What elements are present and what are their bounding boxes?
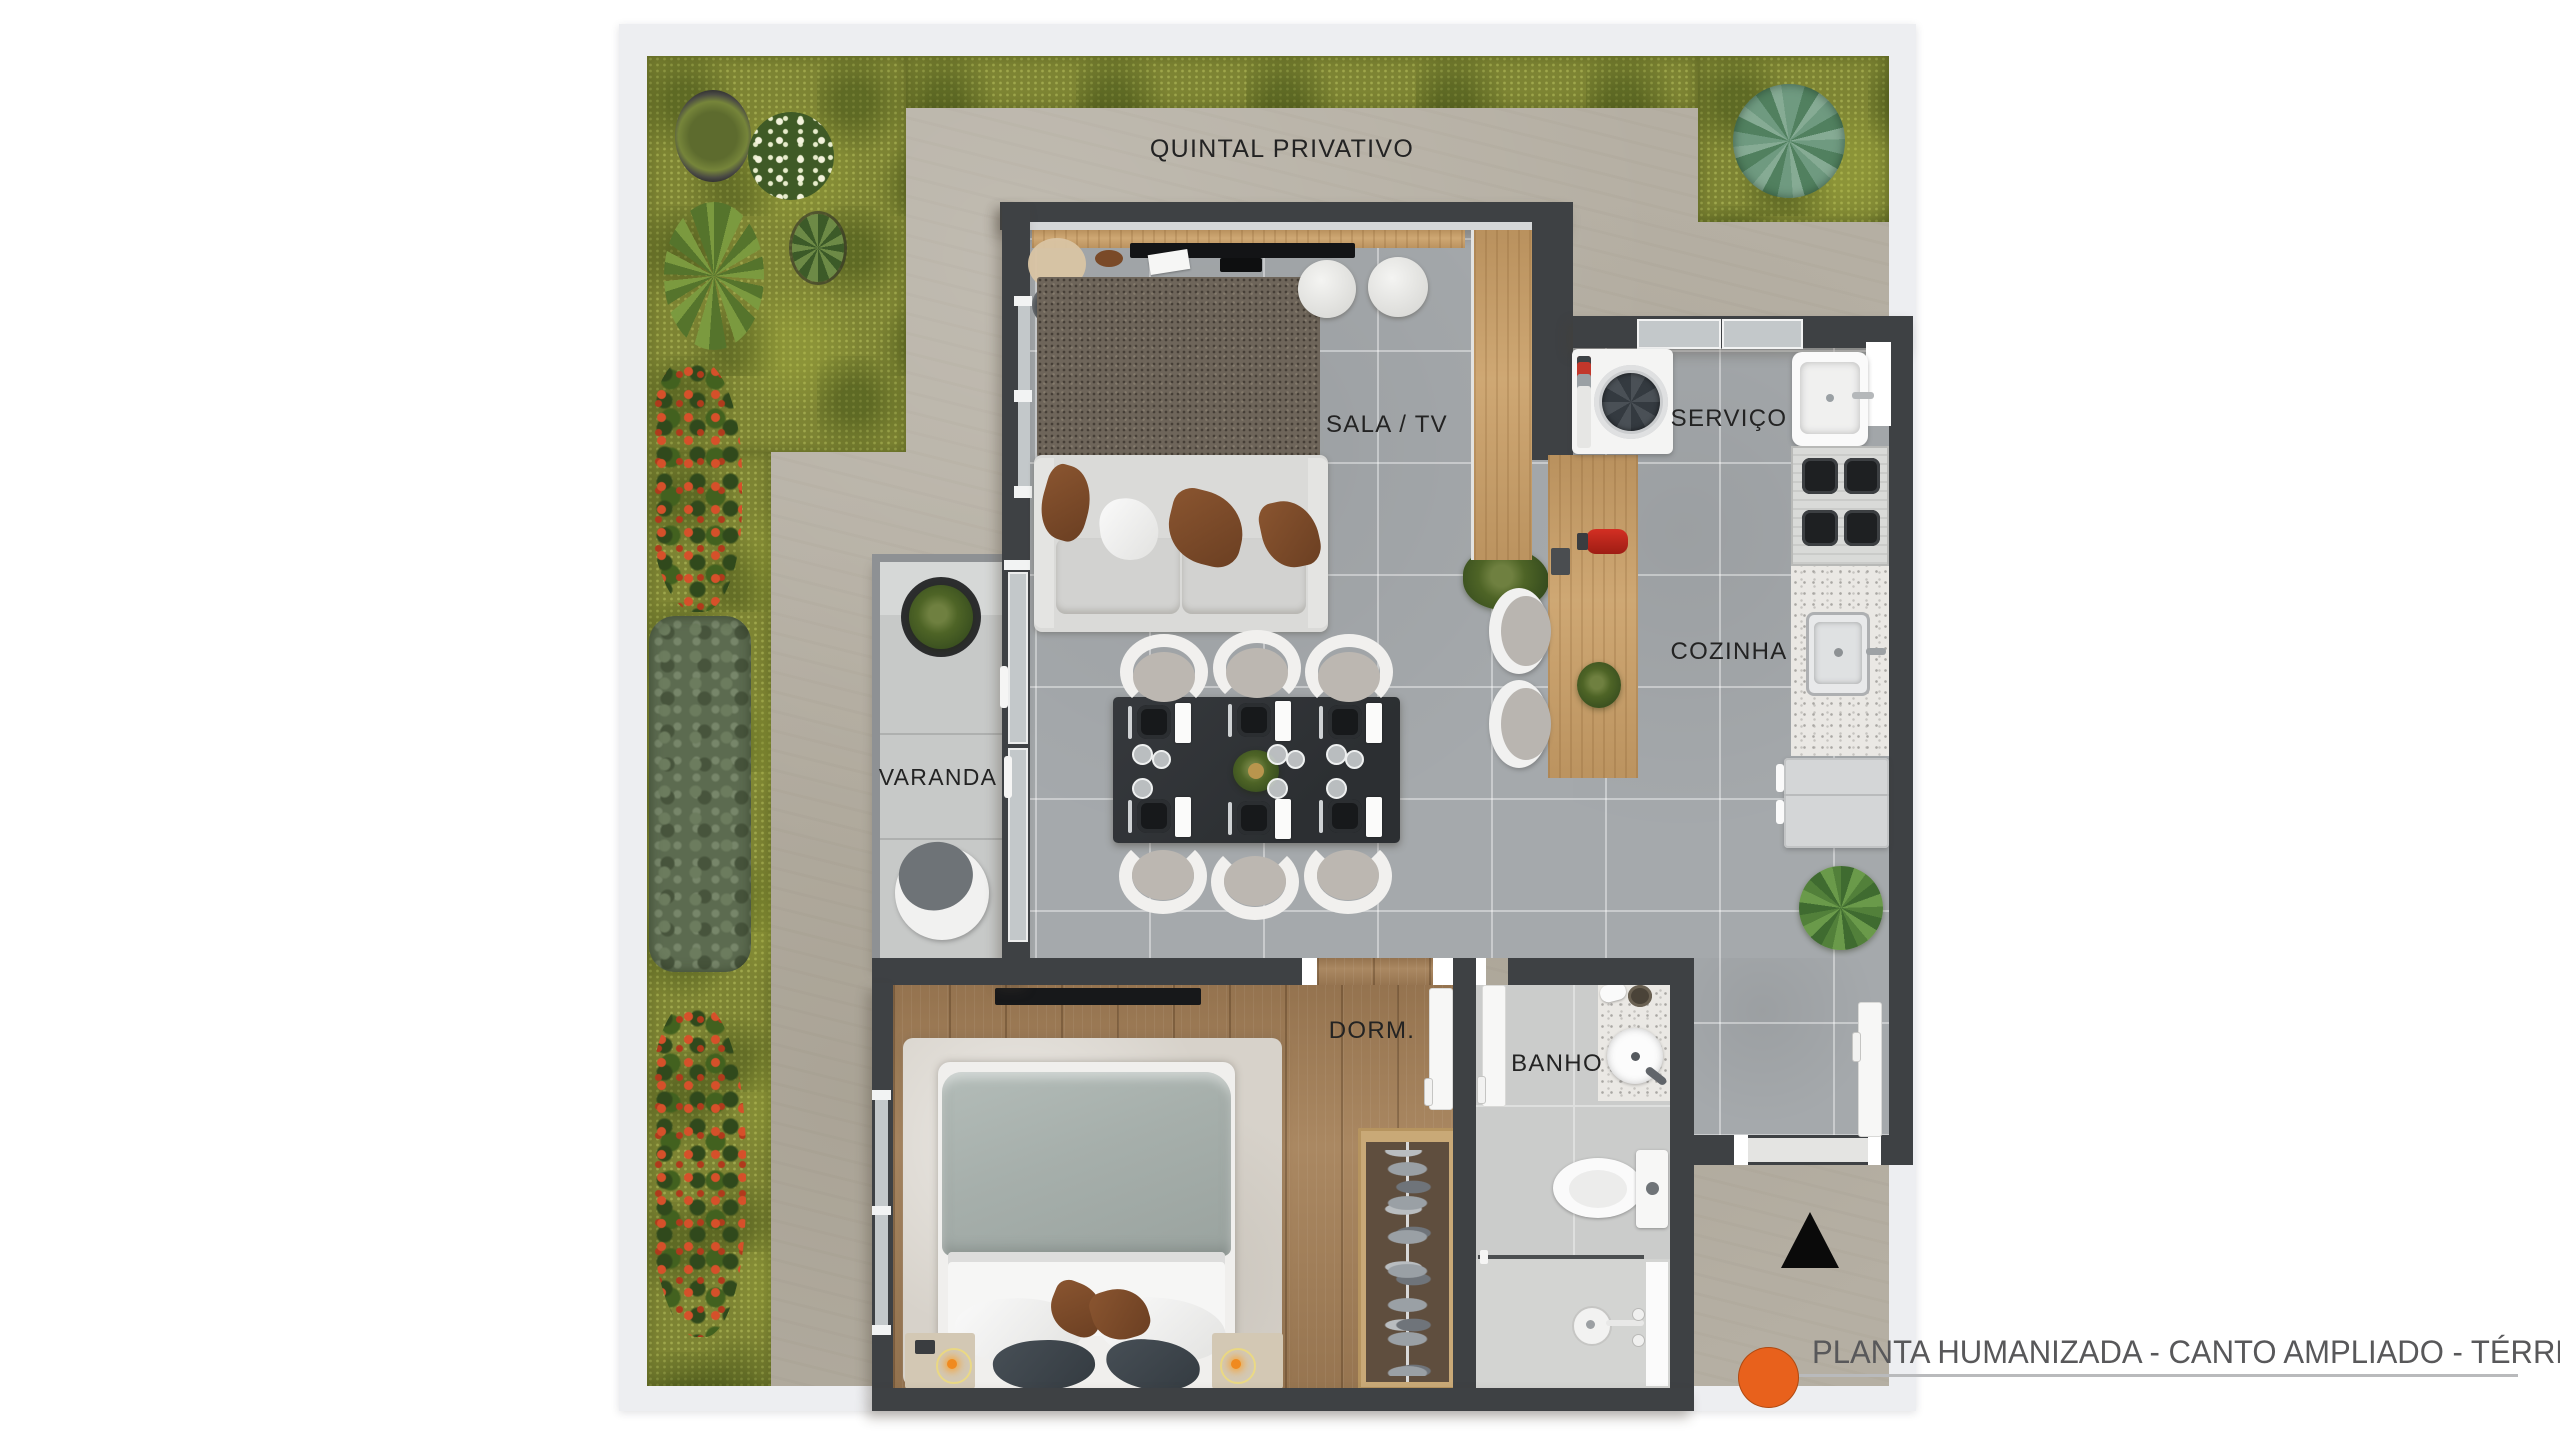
- entry-door-frame: [1868, 1135, 1881, 1165]
- napkin: [1175, 703, 1191, 743]
- legend-underline: [1799, 1374, 2518, 1377]
- bedroom-west-window-frame: [872, 1206, 891, 1215]
- fork: [1128, 706, 1132, 739]
- laundry-tank-faucet: [1852, 392, 1874, 399]
- wall-step-kitchen: [1532, 202, 1573, 460]
- plate: [1137, 799, 1171, 833]
- napkin: [1366, 703, 1382, 743]
- entry-door-handle: [1852, 1032, 1861, 1062]
- bedroom-door-handle: [1424, 1078, 1433, 1106]
- dining-chair-seat: [1317, 850, 1379, 900]
- glass: [1326, 778, 1347, 799]
- dining-chair-seat: [1318, 652, 1380, 702]
- media-receiver: [1220, 258, 1262, 272]
- small-agave-plant: [792, 214, 844, 282]
- room-label-servico: SERVIÇO: [1629, 405, 1829, 433]
- living-rug: [1037, 277, 1320, 457]
- room-label-dorm: DORM.: [1272, 1017, 1472, 1045]
- garden-grass-top-strip: [906, 56, 1698, 108]
- shower-head-center: [1586, 1320, 1595, 1329]
- toilet-bowl-inner: [1569, 1170, 1627, 1208]
- entry-door-threshold: [1748, 1138, 1868, 1162]
- hanging-clothes: [1368, 1150, 1447, 1376]
- living-west-window-glass: [1018, 306, 1030, 390]
- glass: [1286, 750, 1305, 769]
- fork: [1128, 800, 1132, 833]
- fridge-handle: [1776, 800, 1784, 824]
- red-flower-bed-upper: [648, 360, 742, 612]
- bed-duvet: [942, 1072, 1231, 1256]
- wall-bathroom-east: [1670, 958, 1694, 1411]
- service-window: [1722, 319, 1803, 349]
- glass: [1345, 750, 1364, 769]
- bathroom-door-handle: [1477, 1076, 1486, 1104]
- entry-door-frame: [1734, 1135, 1748, 1165]
- burner: [1802, 458, 1838, 494]
- peninsula-counter-kitchen-side: [1548, 455, 1638, 778]
- shower-niche: [1646, 1262, 1668, 1386]
- toilet-flush-button: [1646, 1182, 1659, 1195]
- bedroom-west-window-frame: [872, 1325, 891, 1335]
- laundry-tank-drain: [1826, 394, 1834, 402]
- peninsula-counter-living-side: [1474, 230, 1532, 560]
- entry-door-leaf: [1858, 1002, 1882, 1137]
- fridge-divider: [1784, 794, 1889, 796]
- wall-east: [1889, 316, 1913, 1165]
- shower-valve: [1632, 1308, 1645, 1321]
- burner: [1844, 458, 1880, 494]
- fork: [1319, 706, 1323, 739]
- red-flower-bed-lower: [648, 1005, 746, 1337]
- kitchen-faucet: [1866, 648, 1886, 655]
- bedroom-door-frame: [1302, 958, 1317, 985]
- candle-flame-right: [1231, 1359, 1241, 1369]
- living-west-window-frame: [1014, 296, 1032, 306]
- burner: [1802, 510, 1838, 546]
- bathroom-door-frame: [1476, 958, 1486, 985]
- napkin: [1366, 797, 1382, 837]
- floor-plan-page: QUINTAL PRIVATIVO SALA / TV SERVIÇO COZI…: [0, 0, 2560, 1441]
- glass: [1132, 778, 1153, 799]
- fire-extinguisher: [1586, 529, 1628, 554]
- counter-stool-seat: [1501, 688, 1551, 760]
- balcony-door-glass: [1008, 572, 1028, 744]
- bathroom-tile-joint: [1573, 985, 1575, 1255]
- fire-extinguisher-valve: [1577, 533, 1588, 550]
- burner: [1844, 510, 1880, 546]
- wall-south-bedroom-bathroom: [872, 1388, 1694, 1411]
- napkin: [1175, 797, 1191, 837]
- pouf: [1368, 257, 1428, 317]
- napkin: [1275, 701, 1291, 741]
- bedroom-door-threshold: [1317, 958, 1433, 985]
- fridge: [1784, 758, 1889, 848]
- balcony-top-wall: [872, 554, 1004, 562]
- dining-chair-seat: [1132, 850, 1194, 900]
- balcony-tile-joint: [878, 733, 1004, 735]
- living-north-window-sill: [1030, 222, 1548, 230]
- fork: [1319, 800, 1323, 833]
- wall-bathroom-north: [1508, 958, 1694, 985]
- room-label-sala: SALA / TV: [1287, 411, 1487, 439]
- shower-valve: [1632, 1334, 1645, 1347]
- fork: [1228, 704, 1232, 737]
- balcony-door-frame: [1004, 560, 1030, 570]
- dining-chair-seat: [1133, 652, 1195, 702]
- dark-hedge: [649, 616, 751, 972]
- hall-plant: [1799, 866, 1883, 950]
- fridge-handle: [1776, 764, 1784, 792]
- pouf: [1298, 260, 1356, 318]
- living-west-window-frame: [1014, 390, 1032, 402]
- grass-tuft-plant: [664, 202, 764, 350]
- dining-chair-seat: [1226, 648, 1288, 698]
- room-label-banho: BANHO: [1457, 1050, 1657, 1078]
- plate: [1237, 703, 1271, 737]
- wall-bedroom-north: [872, 958, 1302, 985]
- bedroom-west-window-glass: [875, 1100, 888, 1206]
- plate: [1328, 705, 1362, 739]
- room-label-quintal: QUINTAL PRIVATIVO: [1120, 135, 1444, 164]
- fork: [1228, 802, 1232, 835]
- potted-tree: [675, 90, 751, 182]
- living-west-window-frame: [1014, 486, 1032, 498]
- counter-stool-seat: [1501, 596, 1551, 666]
- napkin: [1275, 799, 1291, 839]
- glass: [1152, 750, 1171, 769]
- candle-flame-left: [947, 1359, 957, 1369]
- shower-glass-partition: [1478, 1255, 1644, 1259]
- white-flower-bush: [748, 112, 834, 200]
- glass: [1267, 744, 1288, 765]
- balcony-tile-joint: [878, 838, 1004, 840]
- legend-title: PLANTA HUMANIZADA - CANTO AMPLIADO - TÉR…: [1812, 1334, 2560, 1371]
- service-east-window: [1866, 342, 1891, 426]
- north-arrow-icon: [1781, 1212, 1839, 1268]
- room-label-varanda: VARANDA: [838, 764, 1038, 791]
- plate: [1137, 705, 1171, 739]
- glass: [1326, 744, 1347, 765]
- nightstand-phone: [915, 1340, 935, 1354]
- plate: [1328, 799, 1362, 833]
- dining-chair-seat: [1224, 856, 1286, 906]
- glass: [1132, 744, 1153, 765]
- counter-tablet: [1551, 548, 1570, 575]
- balcony-door-handle: [1000, 666, 1008, 708]
- legend-bullet-icon: [1738, 1347, 1799, 1408]
- glass: [1267, 778, 1288, 799]
- bedroom-west-window-frame: [872, 1090, 891, 1100]
- service-window: [1637, 319, 1721, 349]
- large-fern-plant: [1733, 84, 1845, 198]
- washing-machine-panel: [1577, 356, 1591, 448]
- balcony-plant: [909, 585, 973, 649]
- room-label-cozinha: COZINHA: [1629, 638, 1829, 666]
- dining-centerpiece-bowl: [1248, 763, 1264, 779]
- wood-bowl-decor: [1095, 250, 1123, 267]
- plate: [1237, 801, 1271, 835]
- kitchen-sink-drain: [1834, 648, 1843, 657]
- living-west-window-glass: [1018, 402, 1030, 486]
- counter-plant: [1577, 662, 1621, 708]
- bedroom-west-window-glass: [875, 1215, 888, 1325]
- bedroom-tv: [995, 988, 1201, 1005]
- shower-glass-handle: [1480, 1250, 1488, 1264]
- bedroom-door-frame: [1433, 958, 1453, 985]
- bathroom-basket: [1628, 985, 1652, 1007]
- balcony-side-wall: [872, 556, 880, 968]
